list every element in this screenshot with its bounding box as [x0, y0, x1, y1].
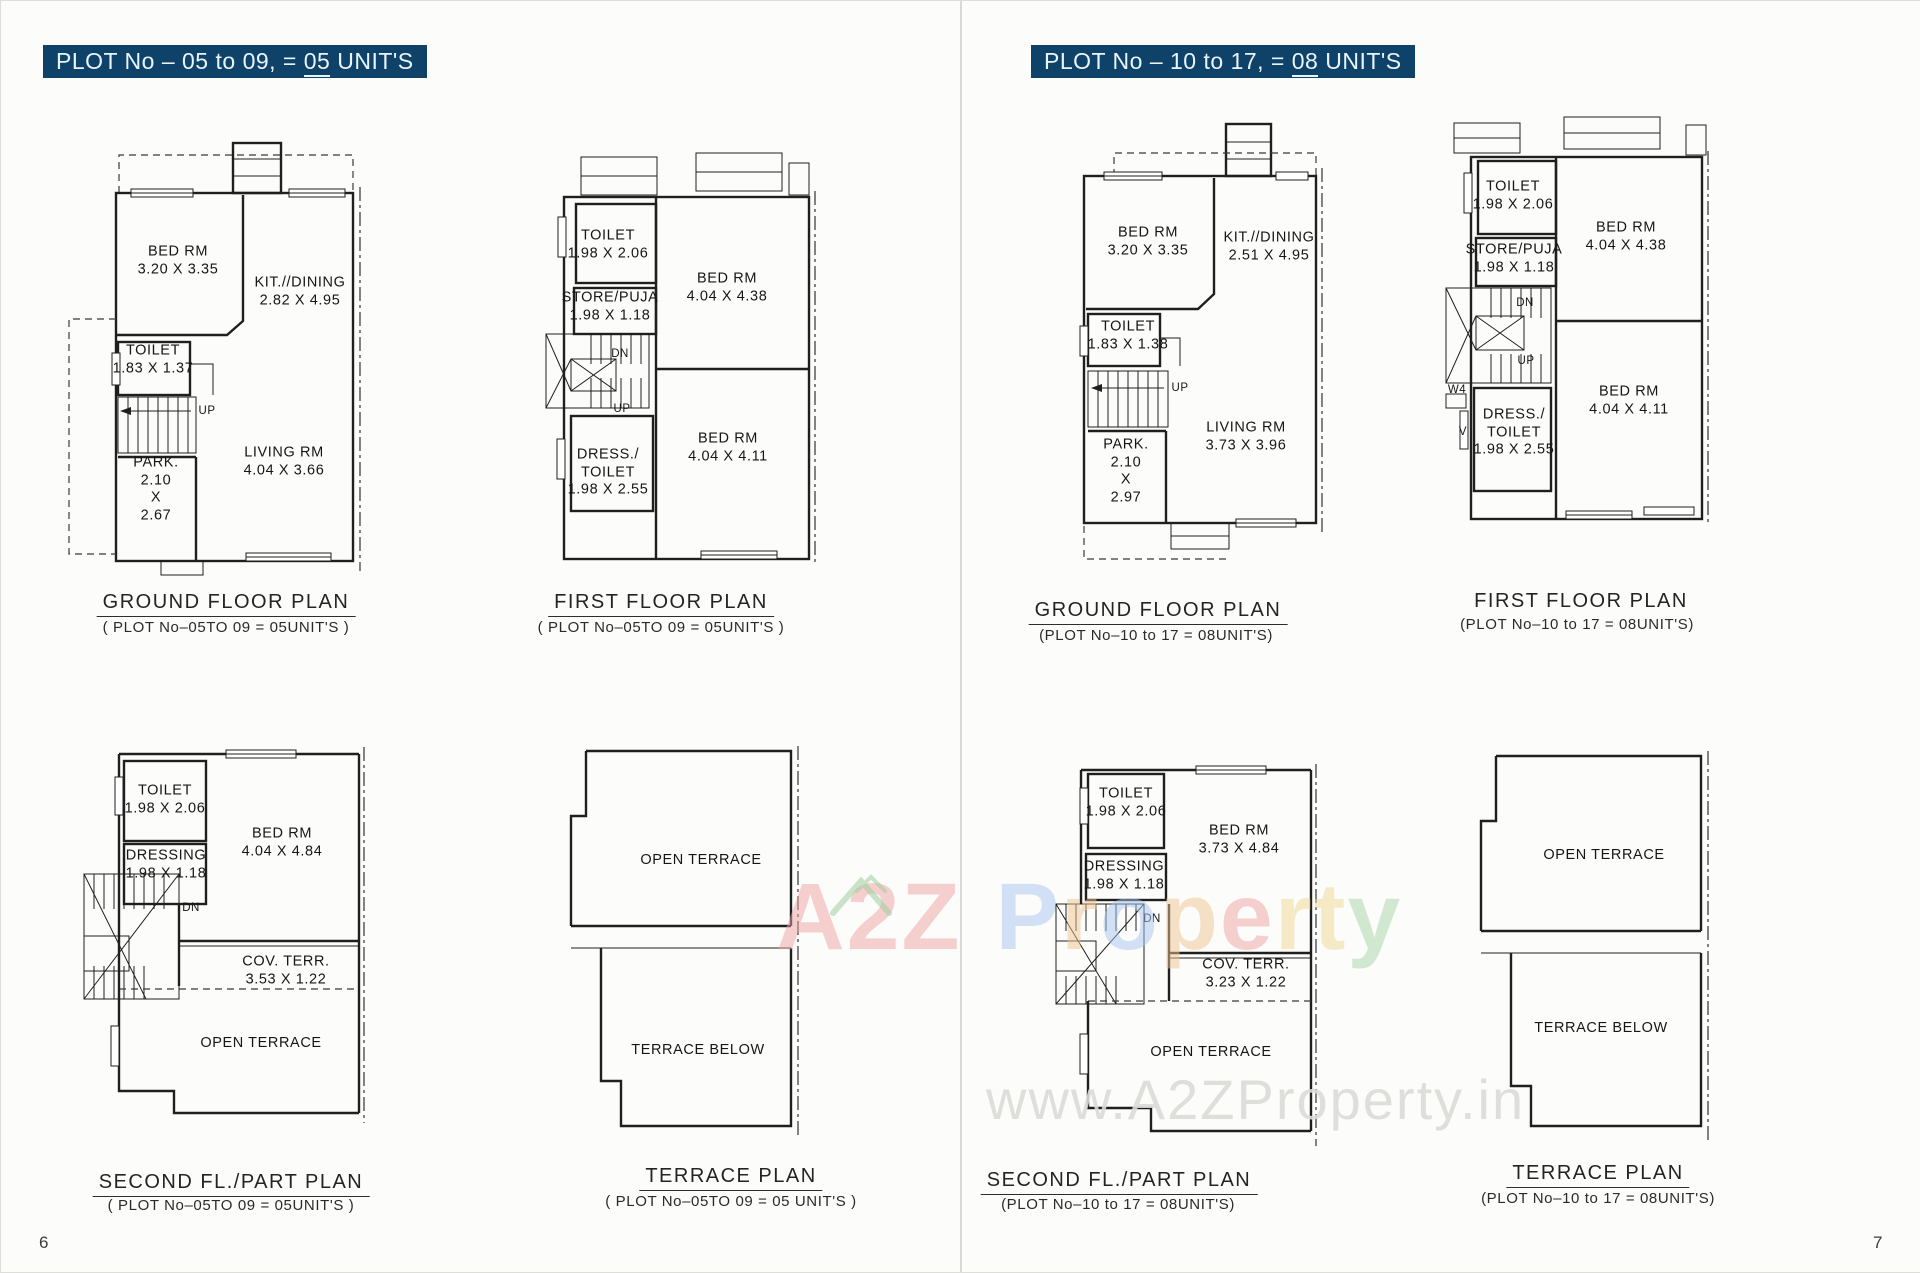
plan-caption: SECOND FL./PART PLAN	[981, 1169, 1258, 1195]
window-mark-label: W4	[1448, 384, 1466, 396]
plan-first-floor-p6: TOILET1.98 X 2.06 STORE/PUJA1.98 X 1.18 …	[546, 151, 846, 571]
room-label: PARK.2.10X2.97	[1103, 437, 1148, 508]
plan-second-floor-p7: TOILET1.98 X 2.06 DRESSING1.98 X 1.18 BE…	[1056, 756, 1386, 1156]
room-label: OPEN TERRACE	[200, 1035, 321, 1053]
plan-subcaption: (PLOT No–10 to 17 = 08UNIT'S)	[1481, 1190, 1715, 1207]
plan-caption: GROUND FLOOR PLAN	[97, 591, 356, 617]
room-label: TOILET1.83 X 1.38	[1088, 318, 1169, 353]
plan-subcaption: ( PLOT No–05TO 09 = 05UNIT'S )	[538, 619, 785, 636]
room-label: LIVING RM3.73 X 3.96	[1206, 419, 1287, 454]
plan-subcaption: ( PLOT No–05TO 09 = 05UNIT'S )	[108, 1197, 355, 1214]
room-label: TOILET1.98 X 2.06	[1086, 785, 1167, 820]
stair-direction-label: UP	[199, 405, 216, 417]
stair-direction-label: DN	[182, 902, 200, 914]
room-label: TERRACE BELOW	[1534, 1020, 1668, 1038]
plan-subcaption: ( PLOT No–05TO 09 = 05UNIT'S )	[103, 619, 350, 636]
plan-terrace-p7: OPEN TERRACE TERRACE BELOW	[1456, 741, 1756, 1161]
plan-second-floor-p6: TOILET1.98 X 2.06 DRESSING1.98 X 1.18 BE…	[66, 741, 376, 1131]
floorplan-drawing	[1456, 741, 1756, 1161]
room-label: TOILET1.98 X 2.06	[568, 227, 649, 262]
plan-subcaption: (PLOT No–10 to 17 = 08UNIT'S)	[1001, 1196, 1235, 1213]
floorplan-drawing	[61, 139, 371, 599]
plan-subcaption: (PLOT No–10 to 17 = 08UNIT'S)	[1039, 627, 1273, 644]
page-number-6: 6	[39, 1233, 48, 1253]
room-label: DRESSING1.98 X 1.18	[1084, 858, 1165, 893]
page7-title-bar: PLOT No – 10 to 17, = 08 UNIT'S	[1031, 45, 1415, 78]
title-text: PLOT No – 10 to 17, =	[1044, 48, 1292, 74]
title-unit-count: 08	[1292, 48, 1319, 77]
room-label: BED RM4.04 X 4.84	[242, 825, 323, 860]
plan-subcaption: ( PLOT No–05TO 09 = 05 UNIT'S )	[605, 1193, 856, 1210]
plan-caption: TERRACE PLAN	[639, 1165, 822, 1191]
room-label: BED RM3.73 X 4.84	[1199, 822, 1280, 857]
room-label: BED RM4.04 X 4.38	[687, 270, 768, 305]
plan-ground-floor-p7: BED RM3.20 X 3.35 KIT.//DINING2.51 X 4.9…	[1076, 116, 1396, 586]
floorplan-drawing	[546, 151, 846, 571]
title-unit-count: 05	[304, 48, 331, 77]
room-label: OPEN TERRACE	[640, 852, 761, 870]
drawing-sheet: PLOT No – 05 to 09, = 05 UNIT'S	[0, 0, 1920, 1273]
plan-caption: FIRST FLOOR PLAN	[1468, 590, 1694, 615]
room-label: STORE/PUJA1.98 X 1.18	[1466, 241, 1563, 276]
vent-mark-label: V	[1459, 426, 1467, 438]
stair-direction-label: UP	[1172, 382, 1189, 394]
room-label: OPEN TERRACE	[1150, 1044, 1271, 1062]
watermark-letter: Z	[901, 863, 961, 972]
room-label: STORE/PUJA1.98 X 1.18	[562, 289, 659, 324]
room-label: BED RM4.04 X 4.11	[1589, 383, 1669, 418]
room-label: KIT.//DINING2.82 X 4.95	[255, 274, 346, 309]
room-label: DRESSING1.98 X 1.18	[126, 847, 207, 882]
room-label: BED RM4.04 X 4.38	[1586, 219, 1667, 254]
plan-caption: FIRST FLOOR PLAN	[548, 591, 774, 617]
stair-direction-label: DN	[611, 348, 629, 360]
room-label: PARK.2.10X2.67	[133, 455, 178, 526]
room-label: BED RM3.20 X 3.35	[138, 243, 219, 278]
page-number-7: 7	[1873, 1233, 1882, 1253]
floorplan-drawing	[546, 736, 846, 1156]
title-text: UNIT'S	[1318, 48, 1401, 74]
stair-direction-label: DN	[1143, 913, 1161, 925]
stair-direction-label: UP	[1518, 355, 1535, 367]
room-label: TOILET1.98 X 2.06	[1473, 178, 1554, 213]
watermark-letter: P	[995, 863, 1060, 972]
title-text: PLOT No – 05 to 09, =	[56, 48, 304, 74]
room-label: TOILET1.98 X 2.06	[125, 782, 206, 817]
plan-caption: TERRACE PLAN	[1506, 1162, 1689, 1188]
room-label: LIVING RM4.04 X 3.66	[244, 444, 325, 479]
room-label: OPEN TERRACE	[1543, 847, 1664, 865]
plan-subcaption: (PLOT No–10 to 17 = 08UNIT'S)	[1460, 616, 1694, 633]
room-label: COV. TERR.3.53 X 1.22	[242, 953, 329, 988]
room-label: COV. TERR.3.23 X 1.22	[1202, 956, 1289, 991]
title-text: UNIT'S	[330, 48, 413, 74]
page-divider	[960, 1, 962, 1272]
stair-direction-label: UP	[614, 403, 631, 415]
room-label: TOILET1.83 X 1.37	[113, 342, 194, 377]
room-label: DRESS./TOILET1.98 X 2.55	[568, 446, 649, 499]
stair-direction-label: DN	[1516, 297, 1534, 309]
page6-title-bar: PLOT No – 05 to 09, = 05 UNIT'S	[43, 45, 427, 78]
room-label: KIT.//DINING2.51 X 4.95	[1224, 229, 1315, 264]
room-label: DRESS./TOILET1.98 X 2.55	[1474, 406, 1555, 459]
floorplan-drawing	[66, 741, 376, 1131]
plan-caption: SECOND FL./PART PLAN	[93, 1171, 370, 1197]
plan-caption: GROUND FLOOR PLAN	[1029, 599, 1288, 625]
room-label: TERRACE BELOW	[631, 1042, 765, 1060]
plan-terrace-p6: OPEN TERRACE TERRACE BELOW	[546, 736, 846, 1156]
plan-ground-floor-p6: BED RM3.20 X 3.35 KIT.//DINING2.82 X 4.9…	[61, 139, 371, 599]
plan-first-floor-p7: TOILET1.98 X 2.06 STORE/PUJA1.98 X 1.18 …	[1446, 111, 1756, 571]
watermark-letter: 2	[847, 863, 902, 972]
room-label: BED RM3.20 X 3.35	[1108, 224, 1189, 259]
room-label: BED RM4.04 X 4.11	[688, 430, 768, 465]
